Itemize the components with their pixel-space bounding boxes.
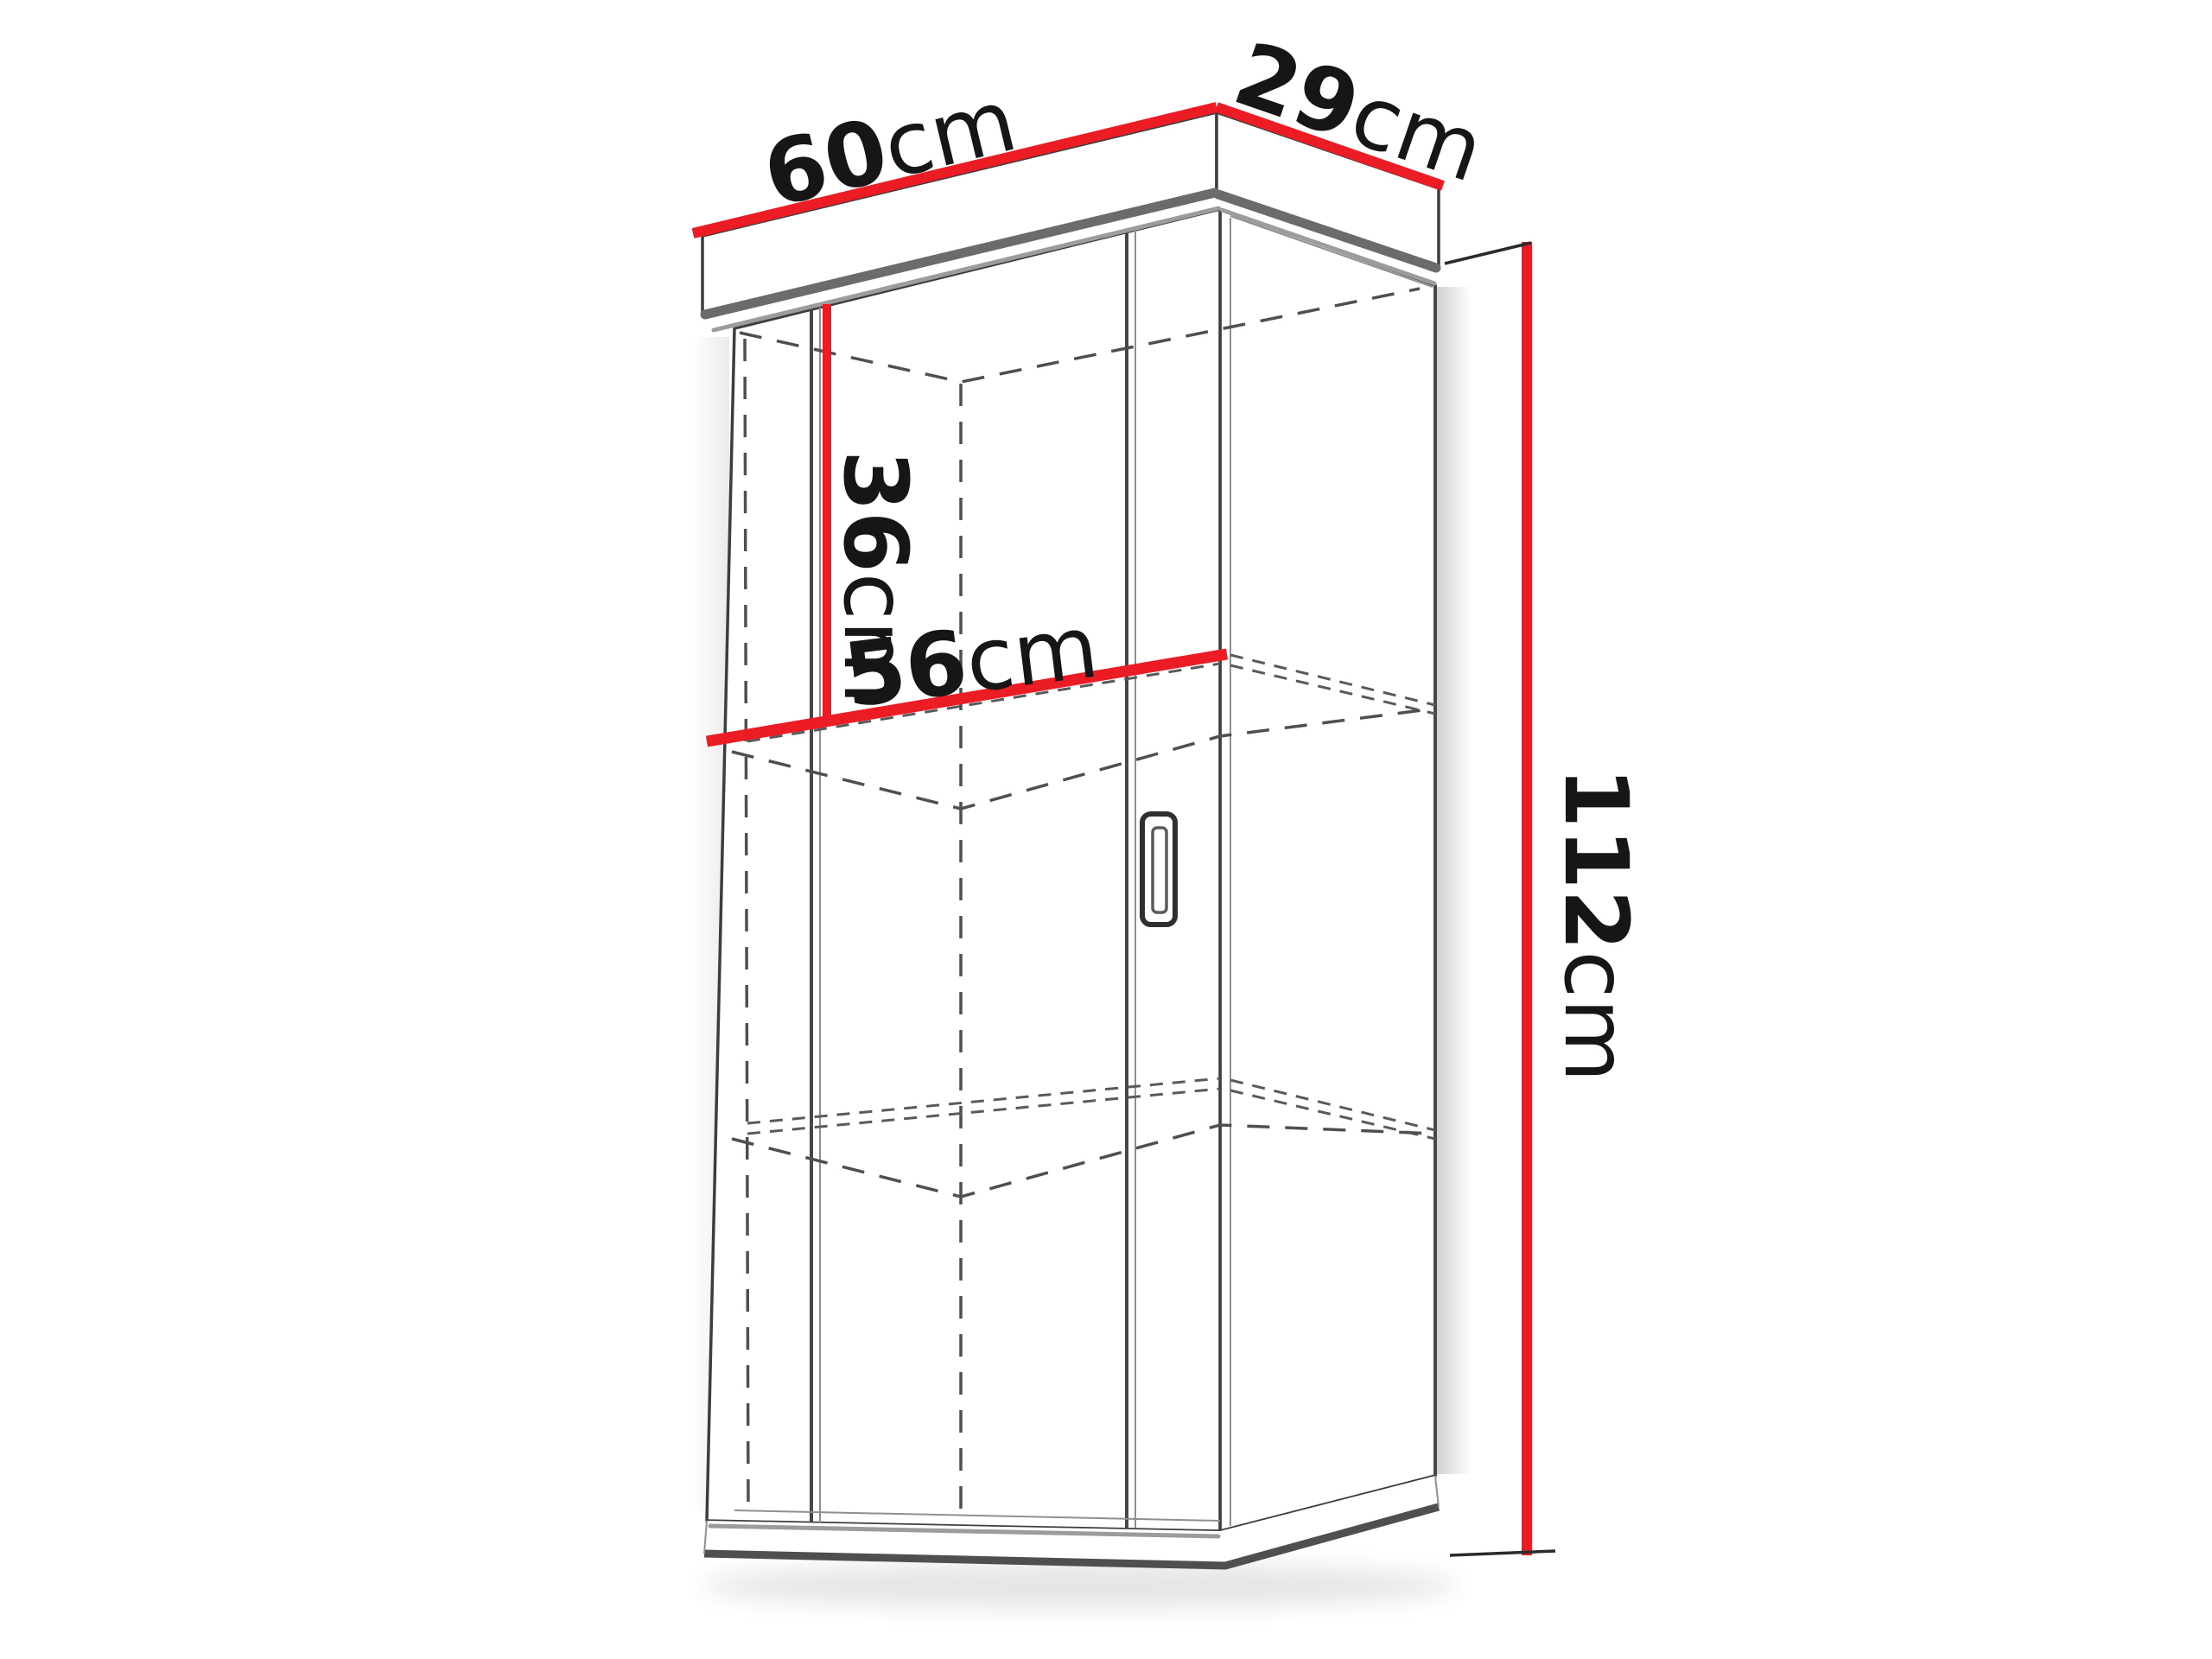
dimension-diagram: 60cm 29cm 36cm 56cm 112cm <box>0 0 2212 1659</box>
door-handle <box>1142 814 1175 925</box>
cabinet-body <box>691 112 1471 1566</box>
height-top-tick <box>1445 243 1531 264</box>
cabinet-shadow <box>700 1563 1460 1608</box>
height-bottom-tick <box>1450 1551 1555 1555</box>
cabinet-drawing-svg: 60cm 29cm 36cm 56cm 112cm <box>0 0 2212 1659</box>
height-label: 112cm <box>1544 766 1647 1082</box>
side-panel-right <box>1220 209 1435 1531</box>
back-edge-shading <box>1437 287 1471 1474</box>
